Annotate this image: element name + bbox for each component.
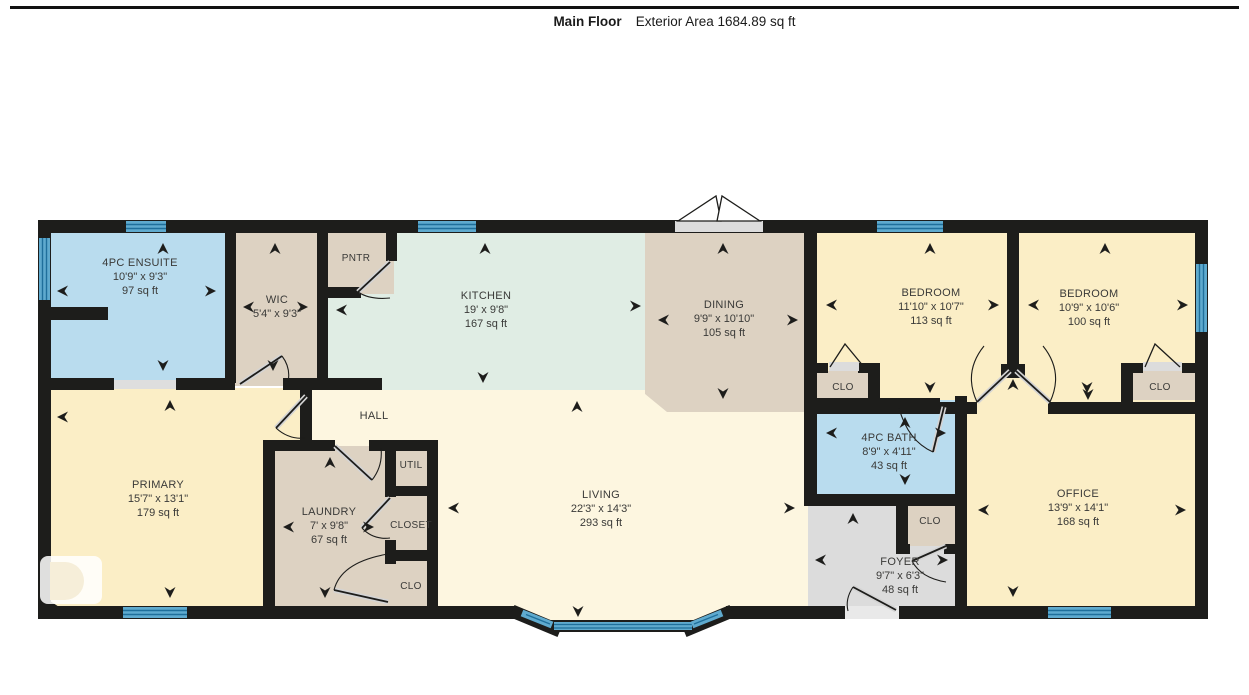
room-label-dining: DINING 9'9" x 10'10" 105 sq ft [694, 298, 754, 340]
room-label-pantry: PNTR [342, 252, 370, 266]
opening-ensuite-entry [114, 380, 176, 389]
room-label-primary: PRIMARY 15'7" x 13'1" 179 sq ft [128, 478, 188, 520]
room-label-clo-laundry: CLO [400, 580, 421, 594]
room-label-kitchen: KITCHEN 19' x 9'8" 167 sq ft [461, 289, 511, 331]
watermark-logo-icon [50, 562, 84, 600]
window-ensuite-left [39, 238, 50, 300]
room-label-bedroom2: BEDROOM 10'9" x 10'6" 100 sq ft [1059, 287, 1119, 329]
room-label-closet: CLOSET [390, 519, 432, 533]
room-label-office: OFFICE 13'9" x 14'1" 168 sq ft [1048, 487, 1108, 529]
window-primary-bottom [123, 607, 187, 618]
window-office-bottom [1048, 607, 1111, 618]
room-label-util: UTIL [400, 459, 423, 473]
room-label-clo-bedroom2: CLO [1149, 381, 1170, 395]
floorplan-page: Main Floor Exterior Area 1684.89 sq ft [0, 0, 1249, 695]
window-bedroom2-right [1196, 264, 1207, 332]
floor-fills [44, 226, 1202, 631]
room-label-ensuite: 4PC ENSUITE 10'9" x 9'3" 97 sq ft [102, 256, 177, 298]
room-label-clo-bedroom1: CLO [832, 381, 853, 395]
room-label-bedroom1: BEDROOM 11'10" x 10'7" 113 sq ft [898, 286, 964, 328]
window-bedroom1-top [877, 221, 943, 232]
window-ensuite-top [126, 221, 166, 232]
room-label-laundry: LAUNDRY 7' x 9'8" 67 sq ft [302, 505, 356, 547]
floorplan-canvas [0, 0, 1249, 695]
room-label-foyer: FOYER 9'7" x 6'3" 48 sq ft [876, 555, 924, 597]
window-kitchen-top [418, 221, 476, 232]
room-label-clo-foyer: CLO [919, 515, 940, 529]
room-label-bath: 4PC BATH 8'9" x 4'11" 43 sq ft [861, 431, 916, 473]
room-label-hall: HALL [360, 409, 389, 423]
brand-watermark [40, 556, 102, 604]
french-door-dining [675, 196, 763, 232]
room-label-living: LIVING 22'3" x 14'3" 293 sq ft [571, 488, 631, 530]
room-label-wic: WIC 5'4" x 9'3" [253, 293, 301, 321]
